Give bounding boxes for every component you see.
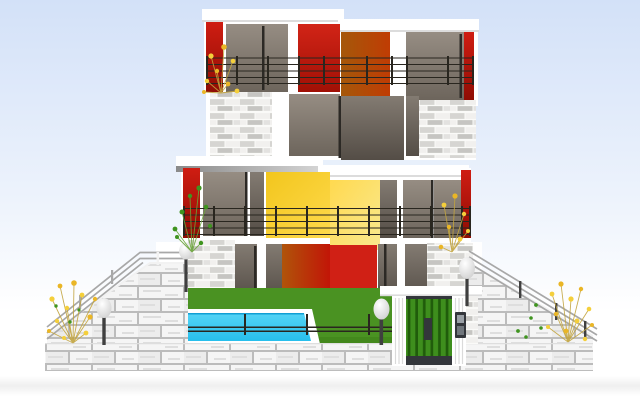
middle-band bbox=[210, 92, 476, 160]
stone-pier-mid-left bbox=[210, 92, 272, 158]
mullion-3f-2 bbox=[460, 34, 463, 98]
roof-slab-right bbox=[338, 19, 479, 32]
retaining-wall bbox=[45, 343, 593, 371]
window-panel-mid-1 bbox=[289, 94, 340, 156]
orange-panel-3f bbox=[341, 32, 390, 104]
gate-bottom-bar bbox=[406, 356, 452, 365]
floor-slab-2f-right bbox=[318, 165, 469, 177]
gate-lock-plate bbox=[424, 318, 432, 340]
window-panel-2f-2 bbox=[250, 172, 264, 236]
building bbox=[156, 9, 482, 307]
gate-pillar-left bbox=[392, 296, 406, 366]
gate-door bbox=[406, 296, 452, 365]
third-floor bbox=[206, 22, 474, 104]
lamp-globe bbox=[374, 299, 390, 320]
window-panel-mid-2 bbox=[341, 96, 404, 160]
mullion-mid bbox=[339, 96, 342, 158]
intercom bbox=[455, 312, 466, 338]
window-panel-mid-3 bbox=[406, 96, 419, 156]
lamp-globe bbox=[459, 257, 475, 279]
lamp-globe bbox=[97, 298, 112, 318]
illustration-canvas: Modern three-story house with balconies,… bbox=[0, 0, 640, 400]
window-panel-3f-2 bbox=[406, 32, 464, 100]
roof-slab-left bbox=[202, 9, 344, 22]
stone-pier-mid-right bbox=[419, 100, 476, 158]
ground-shadow-band bbox=[0, 376, 640, 396]
house-illustration: Modern three-story house with balconies,… bbox=[0, 0, 640, 400]
white-column-gf bbox=[397, 238, 405, 290]
